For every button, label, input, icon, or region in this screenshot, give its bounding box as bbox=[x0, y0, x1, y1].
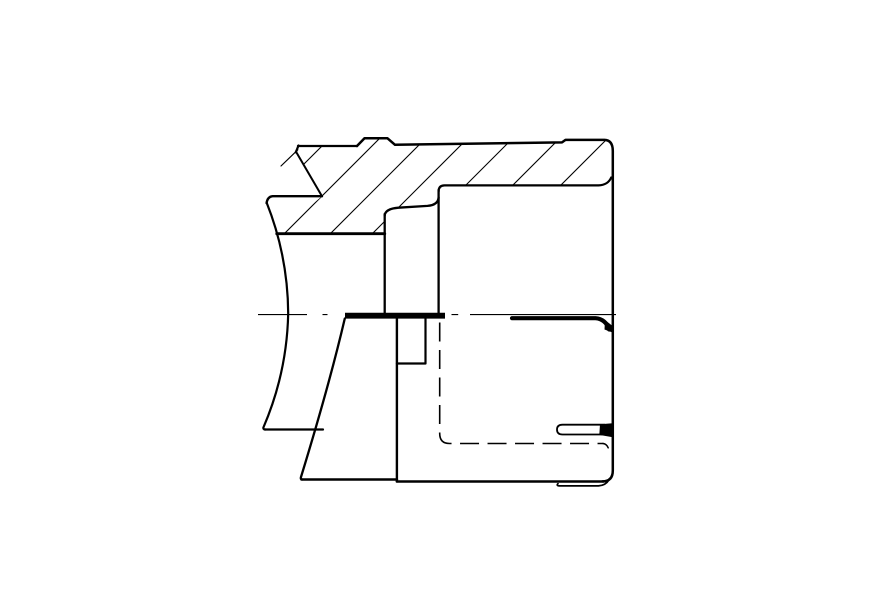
drawing-viewport bbox=[0, 0, 891, 603]
technical-section-drawing bbox=[0, 0, 891, 603]
contact-bar bbox=[345, 313, 445, 319]
slot-wedge bbox=[599, 423, 613, 437]
paper-background bbox=[0, 0, 891, 603]
